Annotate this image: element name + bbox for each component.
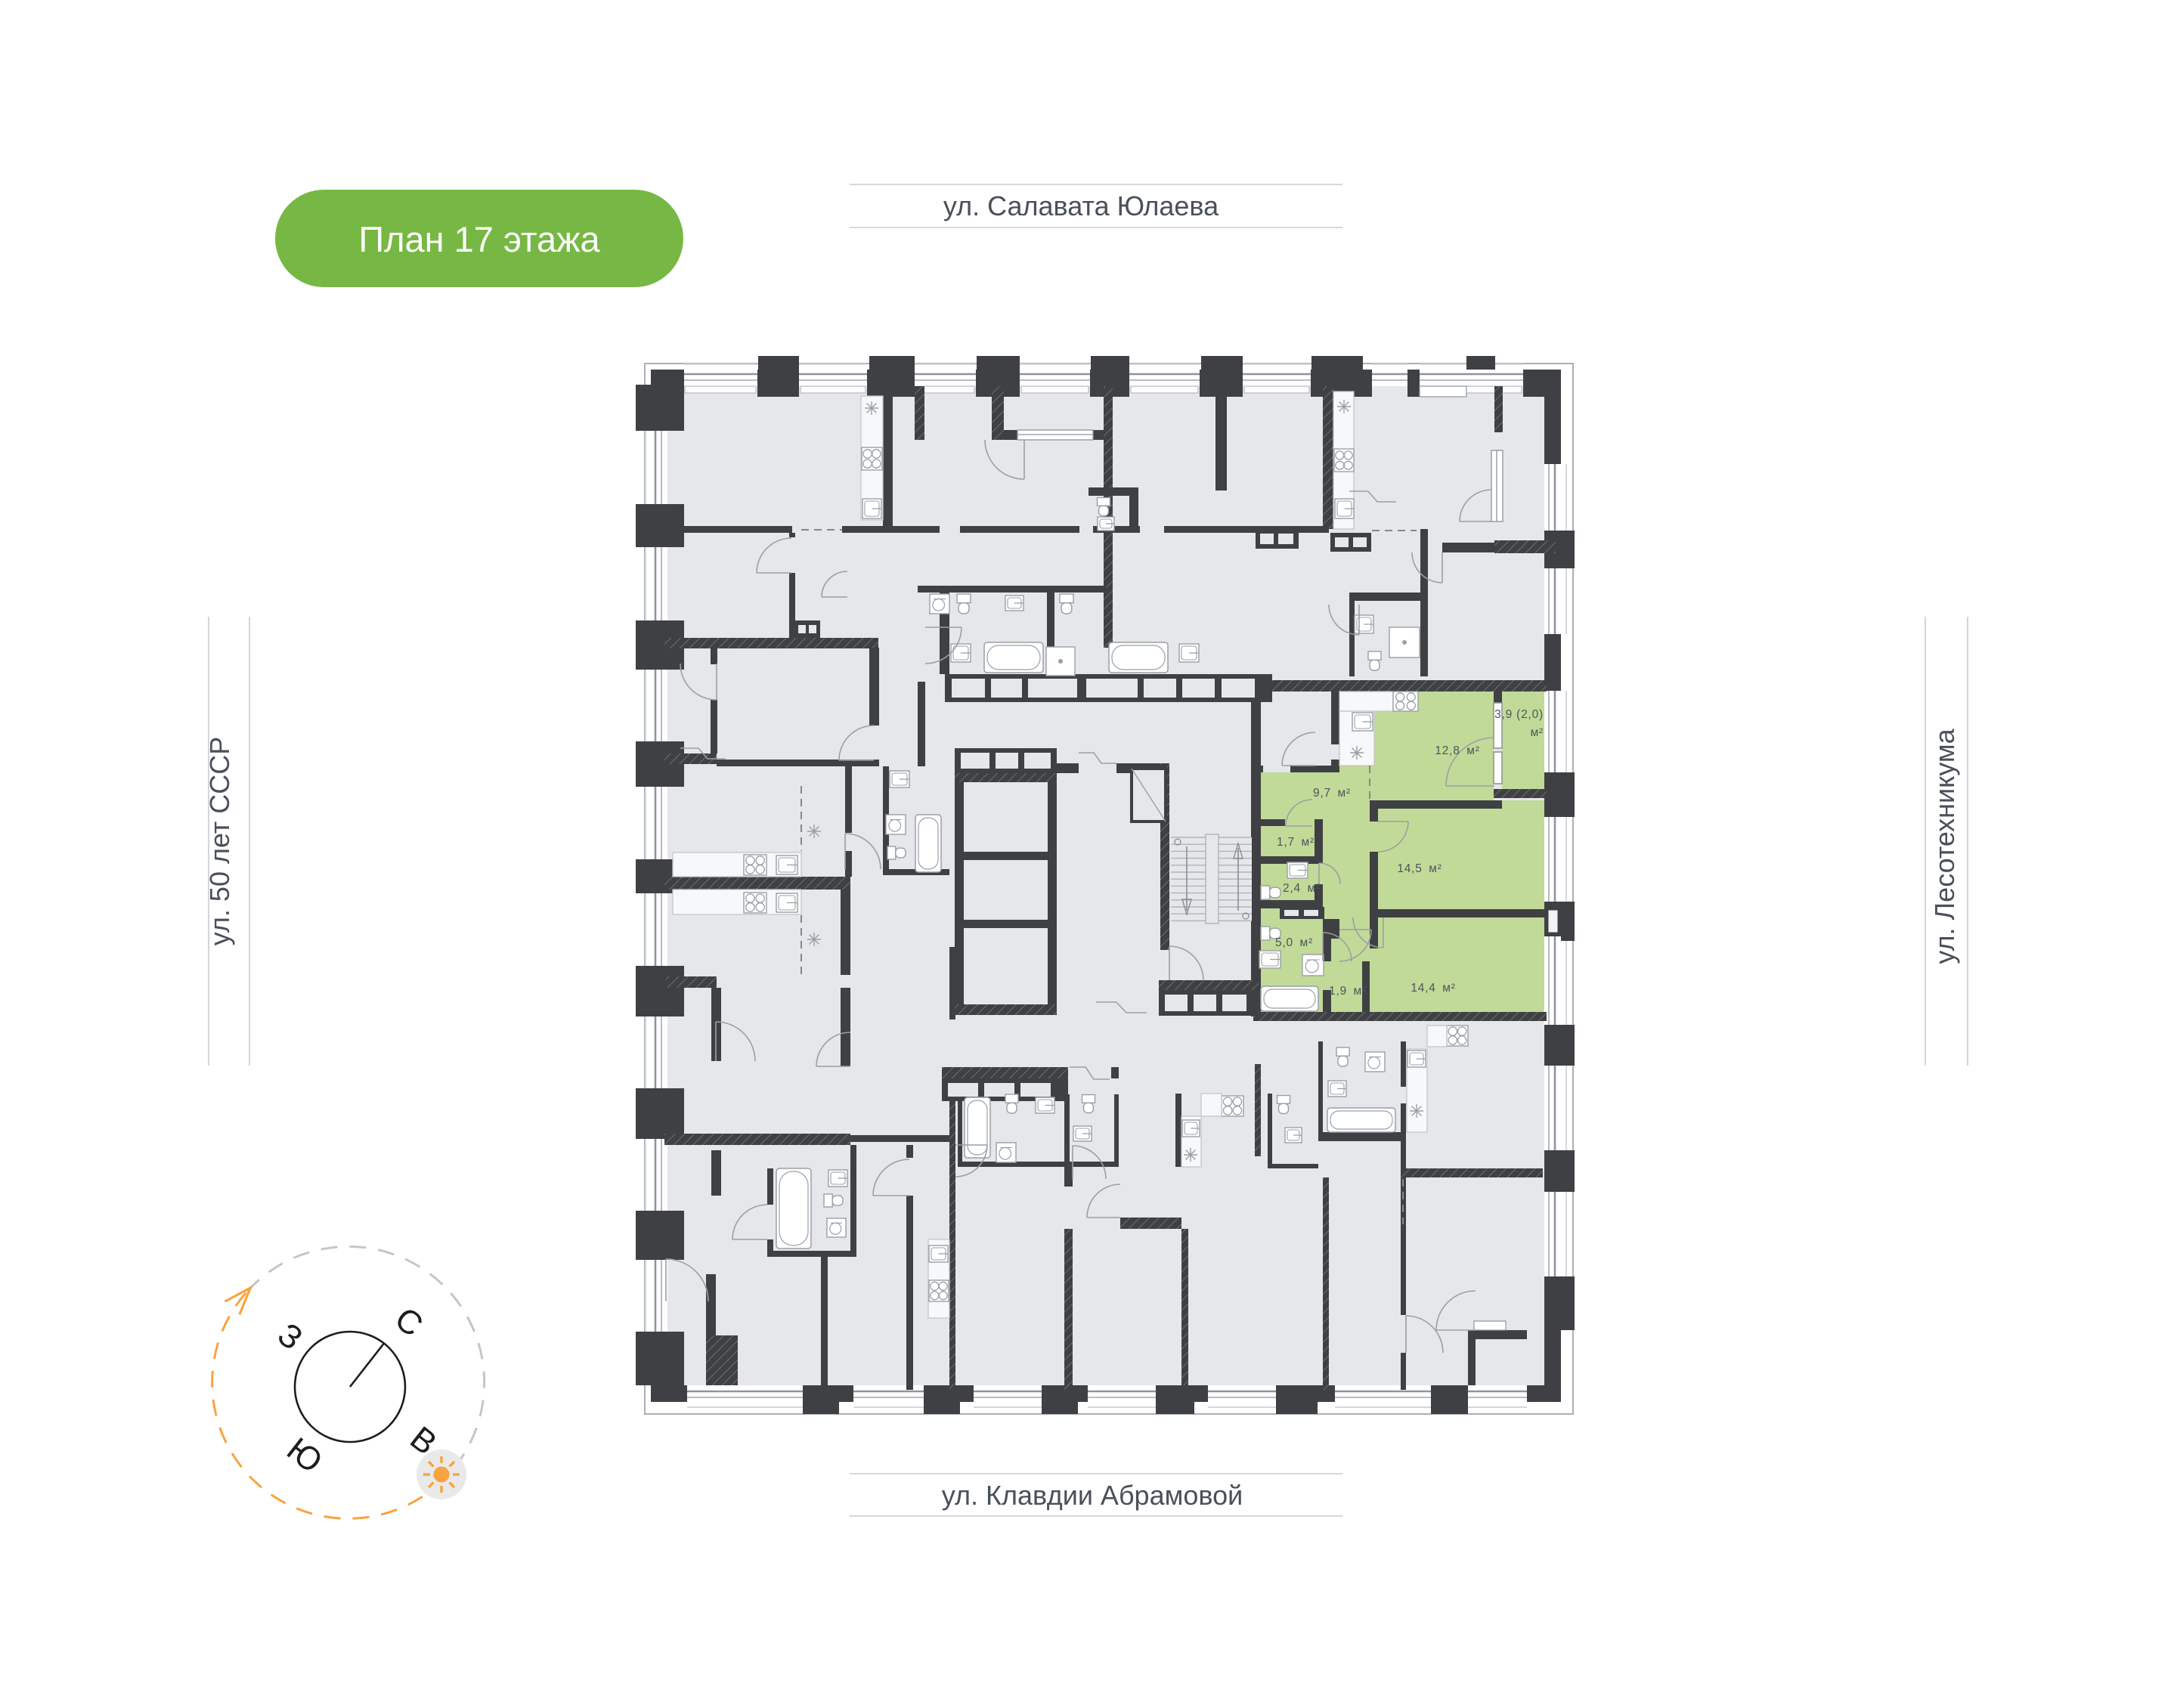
svg-text:1,7 м²: 1,7 м² [1277, 836, 1315, 849]
svg-text:ул. Клавдии Абрамовой: ул. Клавдии Абрамовой [942, 1480, 1243, 1511]
svg-text:2,4 м²: 2,4 м² [1283, 882, 1321, 895]
svg-text:1,9 м²: 1,9 м² [1329, 985, 1367, 998]
svg-text:План 17 этажа: План 17 этажа [358, 219, 600, 259]
svg-text:5,0 м²: 5,0 м² [1275, 936, 1313, 949]
svg-text:14,5 м²: 14,5 м² [1397, 862, 1442, 875]
svg-text:ул. Салавата Юлаева: ул. Салавата Юлаева [943, 190, 1219, 221]
svg-text:м²: м² [1531, 726, 1544, 739]
svg-text:ул. 50 лет СССР: ул. 50 лет СССР [204, 737, 235, 946]
svg-text:14,4 м²: 14,4 м² [1411, 982, 1455, 995]
svg-text:9,7 м²: 9,7 м² [1313, 787, 1351, 800]
svg-text:ул. Лесотехникума: ул. Лесотехникума [1929, 728, 1960, 964]
svg-text:3,9 (2,0): 3,9 (2,0) [1494, 708, 1544, 721]
svg-text:12,8 м²: 12,8 м² [1435, 744, 1479, 757]
